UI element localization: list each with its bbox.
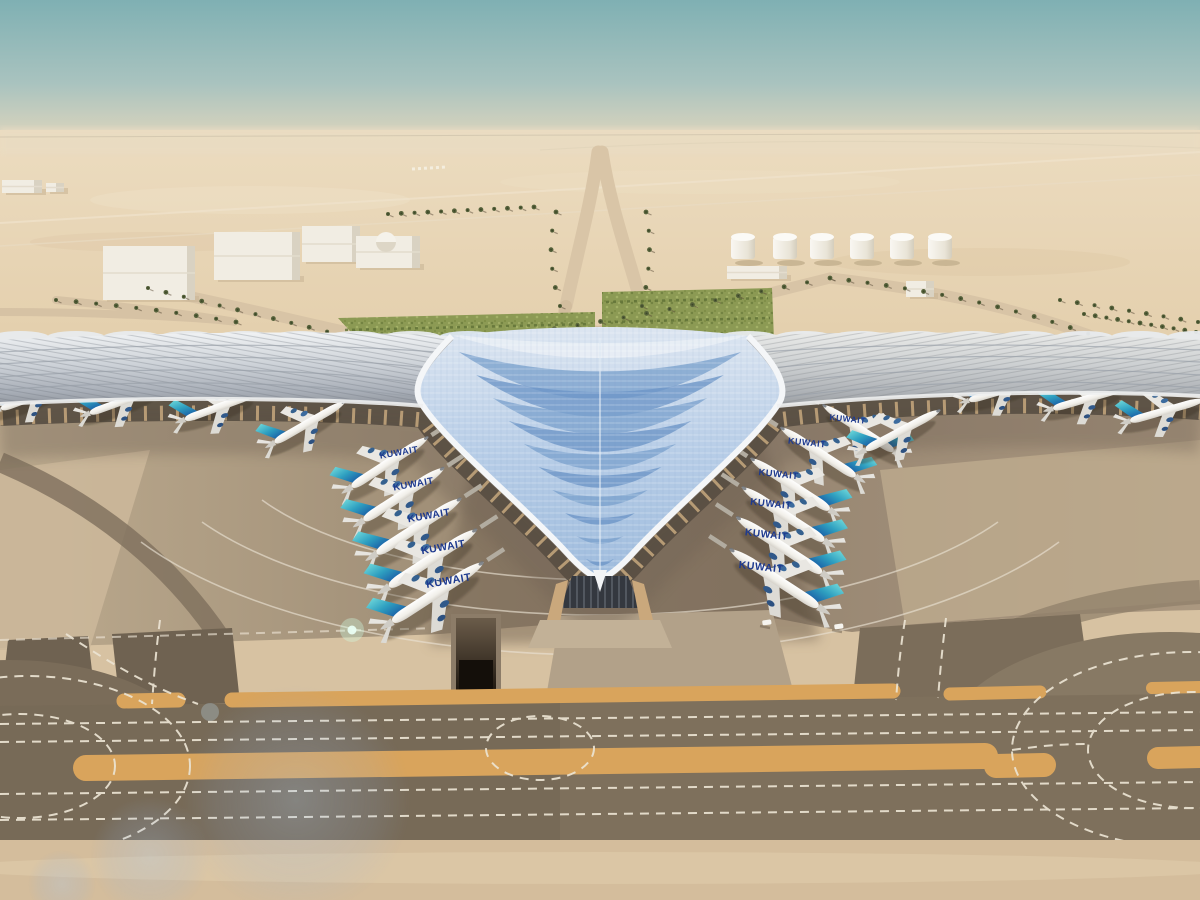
underpass-trench: [451, 614, 501, 698]
tank-shadow: [854, 260, 882, 266]
palm-trunk: [1162, 326, 1164, 328]
palm-trunk: [806, 281, 808, 283]
palm-trunk: [290, 322, 292, 324]
flare-dot: [201, 703, 219, 721]
palm-trunk: [649, 249, 651, 251]
airport-aerial-rendering: KUWAITKUWAITKUWAITKUWAITKUWAITKUWAITKUWA…: [0, 0, 1200, 900]
palm-trunk: [600, 321, 602, 323]
palm-trunk: [255, 313, 257, 315]
palm-trunk: [1180, 318, 1182, 320]
palm-trunk: [533, 206, 535, 208]
tank-shadow: [894, 260, 922, 266]
palm-trunk: [829, 277, 831, 279]
forecourt: [528, 620, 672, 648]
palm-trunk: [453, 210, 455, 212]
tank-shadow: [932, 260, 960, 266]
storage-tank-top: [890, 233, 914, 241]
palm-trunk: [165, 291, 167, 293]
palm-trunk: [551, 230, 553, 232]
palm-trunk: [219, 305, 221, 307]
sand-patch: [90, 186, 410, 214]
palm-trunk: [885, 285, 887, 287]
palm-trunk: [480, 209, 482, 211]
palm-trunk: [1197, 321, 1199, 323]
storage-tank-top: [928, 233, 952, 241]
palm-trunk: [904, 287, 906, 289]
palm-trunk: [195, 315, 197, 317]
tank-shadow: [814, 260, 842, 266]
palm-trunk: [75, 301, 77, 303]
palm-trunk: [235, 321, 237, 323]
palm-trunk: [95, 303, 97, 305]
palm-trunk: [520, 207, 522, 209]
palm-trunk: [427, 211, 429, 213]
storage-tank-top: [731, 233, 755, 241]
rendering-canvas: KUWAITKUWAITKUWAITKUWAITKUWAITKUWAITKUWA…: [0, 0, 1200, 900]
palm-trunk: [550, 249, 552, 251]
tank-shadow: [735, 260, 763, 266]
palm-trunk: [155, 309, 157, 311]
palm-trunk: [1033, 316, 1035, 318]
palm-trunk: [414, 212, 416, 214]
palm-trunk: [1145, 313, 1147, 315]
palm-trunk: [760, 290, 762, 292]
palm-trunk: [646, 312, 648, 314]
palm-trunk: [641, 305, 643, 307]
palm-trunk: [554, 287, 556, 289]
palm-trunk: [645, 287, 647, 289]
palm-trunk: [1128, 320, 1130, 322]
palm-trunk: [692, 304, 694, 306]
palm-trunk: [1094, 304, 1096, 306]
palm-trunk: [669, 308, 671, 310]
palm-trunk: [1094, 315, 1096, 317]
palm-trunk: [648, 230, 650, 232]
palm-trunk: [555, 211, 557, 213]
palm-trunk: [493, 208, 495, 210]
palm-trunk: [147, 287, 149, 289]
palm-trunk: [1051, 321, 1053, 323]
palm-trunk: [272, 318, 274, 320]
palm-trunk: [1069, 327, 1071, 329]
palm-trunk: [326, 331, 328, 333]
palm-trunk: [551, 268, 553, 270]
palm-trunk: [997, 306, 999, 308]
palm-trunk: [1128, 310, 1130, 312]
palm-trunk: [1173, 328, 1175, 330]
palm-trunk: [467, 209, 469, 211]
palm-trunk: [507, 207, 509, 209]
palm-trunk: [400, 212, 402, 214]
palm-trunk: [960, 298, 962, 300]
tank-shadow: [777, 260, 805, 266]
palm-trunk: [1059, 299, 1061, 301]
palm-trunk: [183, 296, 185, 298]
palm-trunk: [783, 286, 785, 288]
storage-tank-top: [810, 233, 834, 241]
palm-trunk: [135, 307, 137, 309]
palm-trunk: [737, 295, 739, 297]
palm-trunk: [623, 317, 625, 319]
roof-west-wing-ribs: [0, 333, 452, 406]
palm-trunk: [848, 279, 850, 281]
storage-tank-top: [773, 233, 797, 241]
palm-trunk: [1150, 324, 1152, 326]
palm-trunk: [215, 318, 217, 320]
palm-trunk: [647, 268, 649, 270]
palm-trunk: [1083, 313, 1085, 315]
flare-glint: [348, 626, 357, 635]
palm-trunk: [923, 291, 925, 293]
palm-trunk: [1111, 307, 1113, 309]
palm-trunk: [867, 282, 869, 284]
palm-trunk: [978, 302, 980, 304]
palm-trunk: [1106, 317, 1108, 319]
palm-trunk: [115, 305, 117, 307]
palm-trunk: [577, 324, 579, 326]
palm-trunk: [308, 326, 310, 328]
tunnel-portal: [459, 660, 493, 692]
palm-trunk: [1163, 315, 1165, 317]
palm-trunk: [1184, 329, 1186, 331]
palm-trunk: [440, 211, 442, 213]
palm-trunk: [645, 211, 647, 213]
palm-trunk: [559, 305, 561, 307]
palm-trunk: [714, 299, 716, 301]
storage-tank-top: [850, 233, 874, 241]
palm-trunk: [1015, 311, 1017, 313]
palm-trunk: [1139, 322, 1141, 324]
palm-trunk: [201, 300, 203, 302]
palm-trunk: [55, 299, 57, 301]
palm-trunk: [387, 213, 389, 215]
palm-trunk: [175, 312, 177, 314]
palm-trunk: [941, 294, 943, 296]
palm-trunk: [1117, 319, 1119, 321]
palm-trunk: [237, 309, 239, 311]
palm-trunk: [1076, 302, 1078, 304]
